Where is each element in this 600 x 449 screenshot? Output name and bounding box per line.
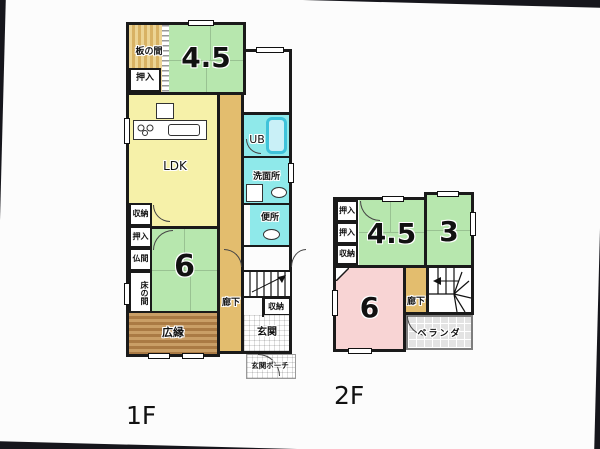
label-butsuma: 仏間 [129, 255, 152, 263]
sink-icon [168, 124, 200, 136]
label-shuno-2f: 収納 [336, 250, 358, 258]
stairs-treads-icon [244, 272, 290, 296]
washing-machine-pan [246, 184, 263, 202]
label-oshiire-left: 押入 [129, 233, 152, 241]
label-senmenjo: 洗面所 [244, 173, 289, 182]
window [148, 353, 170, 359]
label-oshiire-2f-1: 押入 [336, 207, 358, 215]
window [182, 353, 204, 359]
floorplan-photo: 板の間 押入 4.5 LDK UB 洗面所 便所 収納 押入 仏間 床の間 6 … [0, 0, 600, 449]
wall [403, 268, 406, 352]
window [382, 196, 404, 202]
wall [244, 203, 290, 205]
window [124, 118, 130, 144]
label-hiroen: 広縁 [129, 327, 217, 338]
window [437, 191, 459, 197]
label-tatami-4_5-1f: 4.5 [169, 44, 243, 72]
floor2-title: 2F [334, 381, 364, 410]
wall [126, 354, 220, 357]
room-corner-notch [336, 268, 349, 281]
wall [217, 92, 220, 354]
wall [403, 312, 474, 315]
corridor-1f [220, 95, 241, 351]
label-tatami-6-1f: 6 [152, 252, 217, 282]
window [348, 348, 372, 354]
label-shuno-left: 収納 [129, 210, 152, 218]
label-roka-2f: 廊下 [404, 298, 428, 307]
stairs-1f [244, 272, 290, 296]
label-oshiire-2f-2: 押入 [336, 229, 358, 237]
wall [241, 112, 292, 115]
bathtub-icon [266, 117, 287, 154]
wall [243, 22, 246, 95]
wall [244, 156, 290, 158]
floorplan: 板の間 押入 4.5 LDK UB 洗面所 便所 収納 押入 仏間 床の間 6 … [0, 0, 600, 449]
wall [126, 22, 246, 25]
window [188, 20, 214, 26]
wall [126, 92, 246, 95]
label-ub: UB [246, 134, 268, 145]
kitchen-cabinet [156, 103, 174, 119]
wall [244, 245, 290, 247]
window [124, 283, 130, 305]
label-itanoma: 板の間 [128, 48, 170, 57]
label-shuno-right: 収納 [262, 303, 290, 311]
label-veranda: ベランダ [406, 330, 473, 339]
label-tokonoma: 床の間 [134, 275, 148, 311]
stove-icon [135, 123, 161, 137]
sliding-partition [162, 25, 169, 92]
label-ldk: LDK [150, 160, 200, 172]
label-porch: 玄関ポーチ [244, 362, 296, 370]
wall [241, 92, 244, 354]
door-arc-landing-right [291, 249, 306, 267]
label-tatami-6-2f: 6 [336, 294, 403, 322]
floor1-title: 1F [126, 401, 156, 430]
label-roka-1f: 廊下 [219, 299, 243, 308]
stairs-winder-icon [429, 268, 471, 312]
wall [471, 192, 474, 315]
window [256, 47, 284, 53]
label-oshiire-top: 押入 [129, 74, 161, 83]
wall [217, 351, 292, 354]
label-genkan: 玄関 [246, 328, 288, 338]
label-tatami-3-2f: 3 [427, 218, 471, 246]
label-benjo: 便所 [252, 214, 288, 223]
label-tatami-4_5-2f: 4.5 [359, 220, 424, 248]
toilet-icon [263, 229, 280, 240]
stairs-2f [429, 268, 471, 312]
washbasin-icon [271, 187, 287, 198]
